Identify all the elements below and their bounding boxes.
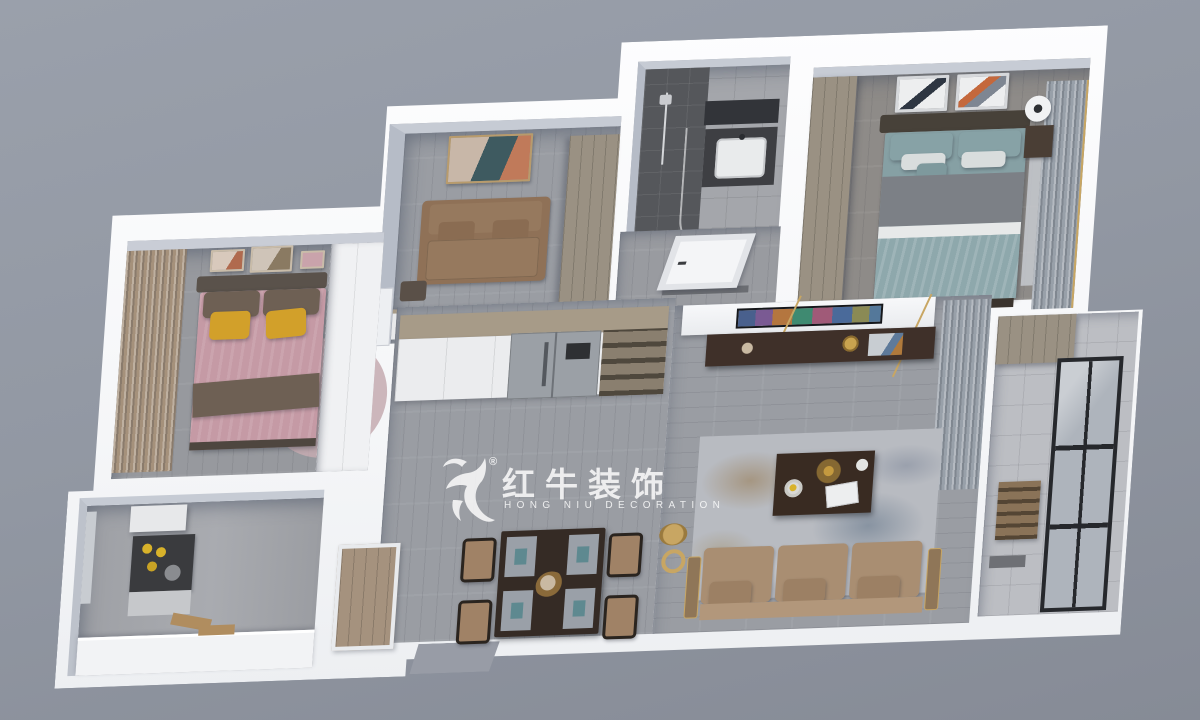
watermark-brand-cn: 红牛装饰 [502,458,674,506]
apartment [54,9,1166,694]
fridge-handle [542,342,549,386]
dining-chair [606,532,643,577]
refrigerator [507,330,602,399]
placemat [563,588,596,629]
pan [164,564,181,581]
vanity-sink [714,137,767,179]
open-shelf [599,328,668,396]
fridge-door-gap [551,332,558,398]
balcony-glass-doors [1040,356,1124,612]
fridge-screen [565,343,590,360]
coffee-table [773,451,876,516]
dining-chair [602,594,639,639]
console-decor-antlers [734,341,761,356]
pink-bed [189,288,326,450]
sofa-seats [425,237,540,281]
room-master-bedroom [797,58,1090,308]
pink-artwork-1 [210,249,246,272]
napkin [572,600,585,616]
dining-chair [460,537,497,582]
pillow-yellow [209,311,251,340]
lemon-plate [784,479,803,498]
pink-artwork-2 [250,245,294,272]
blanket-gray [879,172,1025,227]
napkin [576,546,589,562]
console-decor-plate [842,335,859,352]
pink-artwork-3 [300,250,325,269]
room-kitchen [67,490,324,677]
living-sofa [683,540,943,627]
study-sofa [417,196,551,284]
blanket-brown [192,373,319,418]
vanity-mirror [704,99,780,126]
sofa-armrest [924,548,942,610]
room-balcony [978,312,1139,617]
duvet-teal [873,234,1020,303]
study-side-table [400,281,427,302]
watermark-brand-en: HONG NIU DECORATION [504,500,725,511]
open-book [825,481,859,508]
cooktop-stove [129,534,195,592]
master-bed [873,128,1027,303]
balcony-mat [989,555,1026,568]
gold-side-table [658,523,688,546]
wood-crate-shelf [995,481,1041,540]
watermark-registered: ® [489,456,497,468]
floor-lamp [660,549,686,574]
placemat [500,590,533,631]
master-artwork-2 [955,73,1010,111]
shower-head [659,94,672,104]
room-living [652,295,992,634]
dining-chair [456,599,493,644]
study-artwork [446,133,534,184]
lemon [789,484,797,491]
entry-door [657,233,756,290]
napkin [514,548,527,564]
lemons [142,544,153,554]
placemat [566,534,599,575]
small-plate [856,459,869,471]
napkin [510,602,523,618]
placemat [504,536,537,577]
pillow-white [961,151,1006,169]
entry-notch [409,641,499,674]
balcony-cabinet [995,314,1077,365]
range-hood [129,504,187,532]
flower-centerpiece [535,571,567,600]
kitchen-sink-counter [128,590,192,616]
counter-board [198,624,235,635]
room-second-bedroom [111,232,384,479]
master-artwork-1 [895,75,950,113]
door-handle [678,262,687,265]
pillow-yellow [266,307,306,339]
kitchen-door [331,543,401,651]
console-decor-book [868,333,904,356]
dining-table [494,528,606,638]
floorplan-render: ® 红牛装饰 HONG NIU DECORATION [0,0,1200,720]
master-nightstand [1024,125,1054,158]
kitchen-window [80,512,96,604]
